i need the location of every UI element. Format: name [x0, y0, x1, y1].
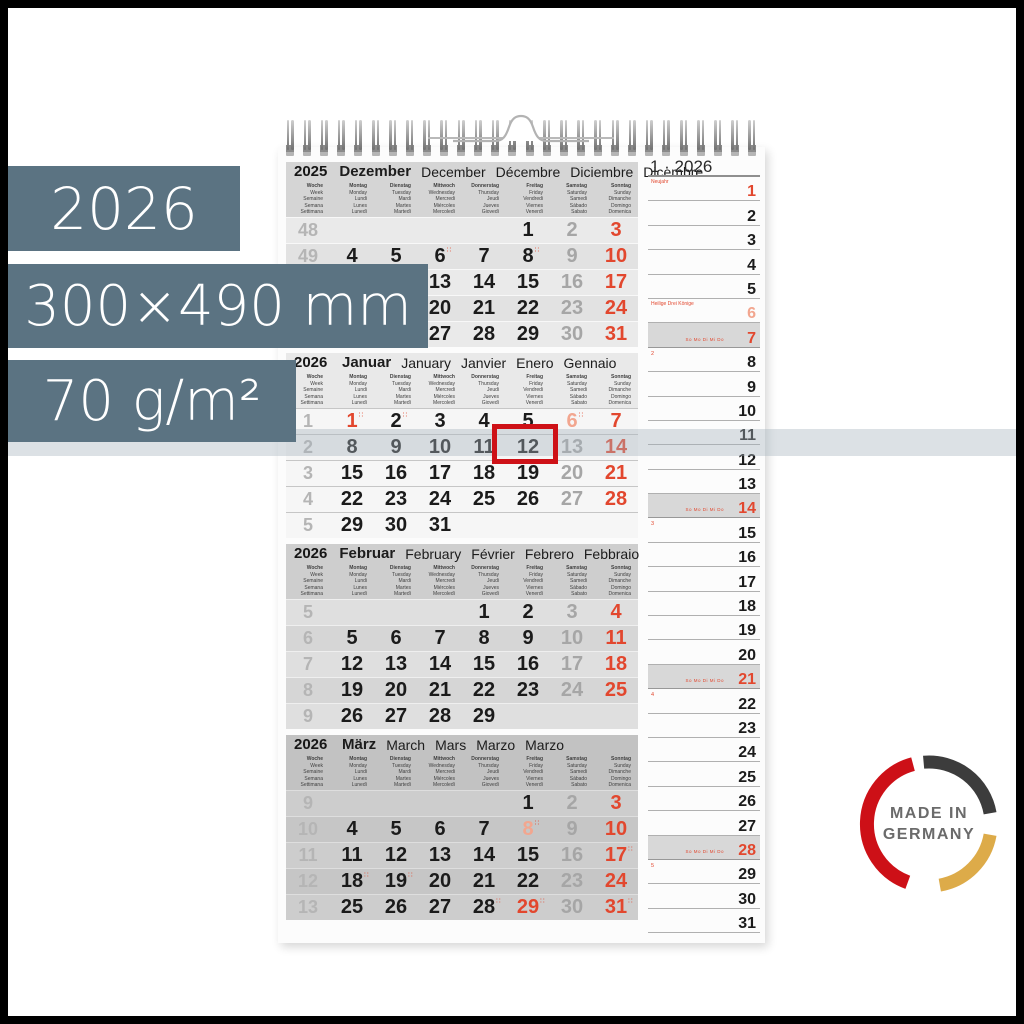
- day-name-cell: SonntagSundayDimancheDomingoDomenica: [594, 754, 638, 790]
- day-cell: 12: [330, 653, 374, 676]
- planner-row: 21So Mo Di Mi Do: [648, 665, 760, 689]
- day-cell: 31: [594, 896, 638, 919]
- day-name-line: Venerdì: [506, 591, 543, 598]
- day-name-cell: SamstagSaturdaySamediSábadoSabato: [550, 372, 594, 408]
- day-cell: 7: [462, 818, 506, 841]
- day-name-line: Mardi: [374, 196, 411, 203]
- day-name-line: Lundi: [330, 578, 367, 585]
- day-name-line: Sonntag: [594, 565, 631, 572]
- month-year: 2026: [286, 736, 330, 753]
- day-cell: 27: [550, 488, 594, 511]
- day-name-line: Mercredi: [418, 578, 455, 585]
- day-name-line: Semaine: [286, 578, 323, 585]
- day-name-line: Dienstag: [374, 183, 411, 190]
- day-name-line: Vendredi: [506, 769, 543, 776]
- day-name-line: Jeudi: [462, 387, 499, 394]
- day-name-line: Tuesday: [374, 763, 411, 770]
- wire-loop-icon: [662, 120, 670, 156]
- day-name-line: Jeudi: [462, 578, 499, 585]
- day-name-line: Mercoledì: [418, 400, 455, 407]
- wire-loop-icon: [680, 120, 688, 156]
- planner-day-number: 17: [738, 575, 756, 591]
- planner-day-number: 26: [738, 794, 756, 810]
- day-name-cell: DonnerstagThursdayJeudiJuevesGiovedì: [462, 754, 506, 790]
- planner-row: 3: [648, 226, 760, 250]
- day-name-line: Dimanche: [594, 196, 631, 203]
- sunday-mini-text: So Mo Di Mi Do: [685, 337, 724, 342]
- day-cell: 20: [418, 870, 462, 893]
- month-name: February: [405, 546, 461, 562]
- week-row: 5293031: [286, 512, 638, 538]
- planner-day-number: 20: [738, 648, 756, 664]
- planner-day-number: 6: [747, 306, 756, 322]
- planner-row: 28So Mo Di Mi Do: [648, 836, 760, 860]
- planner-rows: 1Neujahr23456Heilige Drei Könige7So Mo D…: [648, 177, 760, 933]
- day-cell: 2: [550, 792, 594, 815]
- day-name-line: Dimanche: [594, 769, 631, 776]
- day-name-line: Mercredi: [418, 196, 455, 203]
- day-cell: 13: [374, 653, 418, 676]
- day-name-line: Friday: [506, 190, 543, 197]
- planner-week-number: 2: [651, 351, 654, 357]
- day-cell: 25: [462, 488, 506, 511]
- planner-day-number: 27: [738, 819, 756, 835]
- day-cell: 19: [374, 870, 418, 893]
- day-name-line: Sonntag: [594, 183, 631, 190]
- day-name-line: Martedì: [374, 209, 411, 216]
- day-cell: 20: [374, 679, 418, 702]
- day-name-line: Domenica: [594, 591, 631, 598]
- week-number: 13: [286, 897, 330, 918]
- day-name-line: Jueves: [462, 203, 499, 210]
- day-name-cell: FreitagFridayVendrediViernesVenerdì: [506, 181, 550, 217]
- day-cell: 6: [374, 627, 418, 650]
- planner-day-number: 5: [747, 282, 756, 298]
- day-name-line: Miércoles: [418, 394, 455, 401]
- planner-day-number: 8: [747, 355, 756, 371]
- month-name: Mars: [435, 737, 466, 753]
- month-name: Marzo: [476, 737, 515, 753]
- day-name-line: Lunes: [330, 203, 367, 210]
- wire-loop-icon: [748, 120, 756, 156]
- day-name-cell: FreitagFridayVendrediViernesVenerdì: [506, 372, 550, 408]
- day-name-line: Thursday: [462, 381, 499, 388]
- spec-weight-overlay: 70 g/m²: [8, 360, 296, 442]
- day-name-line: Mercredi: [418, 769, 455, 776]
- planner-row: 18: [648, 592, 760, 616]
- day-cell: 3: [594, 219, 638, 242]
- day-name-line: Lundi: [330, 196, 367, 203]
- day-name-line: Thursday: [462, 763, 499, 770]
- planner-day-number: 29: [738, 867, 756, 883]
- day-name-line: Samedi: [550, 769, 587, 776]
- day-name-line: Montag: [330, 183, 367, 190]
- month-names: FebruarFebruaryFévrierFebreroFebbraio: [327, 545, 639, 562]
- day-name-line: Domingo: [594, 585, 631, 592]
- month-name: December: [421, 164, 486, 180]
- day-name-line: Thursday: [462, 572, 499, 579]
- day-name-line: Mercoledì: [418, 209, 455, 216]
- day-name-line: Martes: [374, 585, 411, 592]
- day-name-line: Sabato: [550, 209, 587, 216]
- week-number: 9: [286, 793, 330, 814]
- week-row: 1111121314151617: [286, 842, 638, 868]
- day-cell: 19: [506, 462, 550, 485]
- day-cell: 11: [594, 627, 638, 650]
- planner-day-number: 24: [738, 745, 756, 761]
- day-cell: 24: [594, 297, 638, 320]
- day-cell: 15: [330, 462, 374, 485]
- day-name-line: Sunday: [594, 763, 631, 770]
- wire-loop-icon: [320, 120, 328, 156]
- day-name-line: Viernes: [506, 394, 543, 401]
- month-year: 2025: [286, 163, 327, 180]
- planner-row: 1Neujahr: [648, 177, 760, 201]
- day-cell: 22: [330, 488, 374, 511]
- planner-day-number: 16: [738, 550, 756, 566]
- day-name-line: Domenica: [594, 400, 631, 407]
- wire-loop-icon: [731, 120, 739, 156]
- day-cell: 29: [462, 705, 506, 728]
- day-cell: 18: [330, 870, 374, 893]
- day-name-line: Jueves: [462, 776, 499, 783]
- day-name-cell: SonntagSundayDimancheDomingoDomenica: [594, 563, 638, 599]
- day-name-line: Freitag: [506, 374, 543, 381]
- day-name-line: Thursday: [462, 190, 499, 197]
- day-cell: 15: [506, 844, 550, 867]
- planner-row: 7So Mo Di Mi Do: [648, 323, 760, 347]
- week-number: 8: [286, 680, 330, 701]
- planner-row: 5: [648, 275, 760, 299]
- day-cell: 23: [374, 488, 418, 511]
- day-name-line: Wednesday: [418, 763, 455, 770]
- day-cell: 26: [506, 488, 550, 511]
- day-cell: 21: [594, 462, 638, 485]
- day-name-line: Giovedì: [462, 400, 499, 407]
- day-cell: 29: [330, 514, 374, 537]
- month-name: January: [401, 355, 451, 371]
- day-cell: 19: [330, 679, 374, 702]
- day-cell: 3: [594, 792, 638, 815]
- planner-day-number: 22: [738, 697, 756, 713]
- day-name-line: Sonntag: [594, 374, 631, 381]
- day-name-cell: SamstagSaturdaySamediSábadoSabato: [550, 181, 594, 217]
- day-name-line: Samstag: [550, 183, 587, 190]
- planner-row: 153: [648, 518, 760, 542]
- spec-size-label: 300×490 mm: [24, 274, 412, 339]
- made-in-germany-badge: MADE IN GERMANY: [849, 744, 1009, 904]
- planner-row: 9: [648, 372, 760, 396]
- day-name-cell: SonntagSundayDimancheDomingoDomenica: [594, 372, 638, 408]
- month-title: 2025DezemberDecemberDécembreDiciembreDic…: [286, 162, 638, 181]
- day-name-cell: FreitagFridayVendrediViernesVenerdì: [506, 754, 550, 790]
- week-number: 12: [286, 871, 330, 892]
- day-cell: 21: [462, 870, 506, 893]
- day-name-line: Mittwoch: [418, 183, 455, 190]
- day-name-line: Mittwoch: [418, 756, 455, 763]
- day-name-line: Freitag: [506, 183, 543, 190]
- day-name-cell: WocheWeekSemaineSemanaSettimana: [286, 181, 330, 217]
- week-row: 712131415161718: [286, 651, 638, 677]
- planner-row: 10: [648, 397, 760, 421]
- week-number: 48: [286, 220, 330, 241]
- spec-year-label: 2026: [50, 175, 198, 243]
- day-name-line: Domingo: [594, 394, 631, 401]
- badge-line1: MADE IN: [890, 804, 968, 823]
- day-cell: 9: [550, 818, 594, 841]
- day-name-line: Domingo: [594, 776, 631, 783]
- month-name: Gennaio: [564, 355, 617, 371]
- day-name-line: Friday: [506, 572, 543, 579]
- week-row: 9123: [286, 790, 638, 816]
- day-name-cell: DienstagTuesdayMardiMartesMartedì: [374, 181, 418, 217]
- day-name-line: Mittwoch: [418, 565, 455, 572]
- planner-row: 17: [648, 567, 760, 591]
- day-name-line: Wednesday: [418, 381, 455, 388]
- day-cell: 2: [506, 601, 550, 624]
- day-name-line: Semana: [286, 776, 323, 783]
- day-name-line: Giovedì: [462, 209, 499, 216]
- day-name-line: Tuesday: [374, 190, 411, 197]
- day-cell: 24: [550, 679, 594, 702]
- day-name-line: Settimana: [286, 209, 323, 216]
- wire-loop-icon: [372, 120, 380, 156]
- day-name-line: Giovedì: [462, 591, 499, 598]
- sunday-mini-text: So Mo Di Mi Do: [685, 507, 724, 512]
- day-name-line: Martes: [374, 776, 411, 783]
- spec-size-overlay: 300×490 mm: [8, 264, 428, 348]
- day-cell: 9: [506, 627, 550, 650]
- day-cell: 23: [506, 679, 550, 702]
- planner-row: 16: [648, 543, 760, 567]
- day-name-line: Freitag: [506, 756, 543, 763]
- month-block: 2026MärzMarchMarsMarzoMarzoWocheWeekSema…: [286, 735, 638, 920]
- day-name-line: Lunedì: [330, 782, 367, 789]
- wire-loop-icon: [337, 120, 345, 156]
- month-name: Enero: [516, 355, 553, 371]
- day-name-line: Lundi: [330, 387, 367, 394]
- day-cell: 7: [418, 627, 462, 650]
- day-name-line: Mardi: [374, 769, 411, 776]
- day-name-line: Friday: [506, 381, 543, 388]
- day-cell: 24: [418, 488, 462, 511]
- sunday-mini-text: So Mo Di Mi Do: [685, 678, 724, 683]
- day-name-line: Saturday: [550, 190, 587, 197]
- day-cell: 10: [594, 818, 638, 841]
- day-name-line: Miércoles: [418, 776, 455, 783]
- planner-row: 30: [648, 884, 760, 908]
- day-name-line: Settimana: [286, 782, 323, 789]
- wire-loop-icon: [303, 120, 311, 156]
- wire-loop-icon: [714, 120, 722, 156]
- day-name-line: Week: [286, 572, 323, 579]
- planner-day-number: 23: [738, 721, 756, 737]
- day-name-line: Vendredi: [506, 387, 543, 394]
- day-cell: 25: [330, 896, 374, 919]
- day-name-line: Sábado: [550, 585, 587, 592]
- day-name-header: WocheWeekSemaineSemanaSettimanaMontagMon…: [286, 181, 638, 217]
- day-cell: 16: [374, 462, 418, 485]
- day-cell: 3: [550, 601, 594, 624]
- day-name-cell: MontagMondayLundiLunesLunedì: [330, 563, 374, 599]
- day-cell: 6: [418, 818, 462, 841]
- day-cell: 20: [550, 462, 594, 485]
- month-title: 2026FebruarFebruaryFévrierFebreroFebbrai…: [286, 544, 638, 563]
- day-name-line: Giovedì: [462, 782, 499, 789]
- day-cell: 2: [550, 219, 594, 242]
- planner-header: 1 · 2026: [648, 155, 760, 177]
- day-name-cell: SonntagSundayDimancheDomingoDomenica: [594, 181, 638, 217]
- day-name-line: Sabato: [550, 782, 587, 789]
- day-name-line: Domenica: [594, 209, 631, 216]
- day-name-line: Jeudi: [462, 769, 499, 776]
- day-cell: 12: [374, 844, 418, 867]
- day-cell: 1: [462, 601, 506, 624]
- holiday-note: Heilige Drei Könige: [651, 301, 694, 307]
- product-image: 2025DezemberDecemberDécembreDiciembreDic…: [0, 0, 1024, 1024]
- day-name-cell: MittwochWednesdayMercrediMiércolesMercol…: [418, 372, 462, 408]
- day-cell: 8: [462, 627, 506, 650]
- day-name-cell: MontagMondayLundiLunesLunedì: [330, 372, 374, 408]
- day-name-line: Donnerstag: [462, 756, 499, 763]
- day-name-line: Miércoles: [418, 585, 455, 592]
- day-name-line: Lundi: [330, 769, 367, 776]
- month-block: 2026FebruarFebruaryFévrierFebreroFebbrai…: [286, 544, 638, 729]
- day-name-line: Friday: [506, 763, 543, 770]
- month-name: March: [386, 737, 425, 753]
- month-name: Febrero: [525, 546, 574, 562]
- planner-row: 25: [648, 762, 760, 786]
- month-name: März: [342, 736, 376, 753]
- week-row: 1325262728293031: [286, 894, 638, 920]
- day-name-line: Dienstag: [374, 565, 411, 572]
- day-cell: 18: [462, 462, 506, 485]
- planner-day-number: 10: [738, 404, 756, 420]
- day-cell: 10: [550, 627, 594, 650]
- planner-row: 295: [648, 860, 760, 884]
- day-name-line: Viernes: [506, 776, 543, 783]
- day-name-cell: FreitagFridayVendrediViernesVenerdì: [506, 563, 550, 599]
- week-row: 819202122232425: [286, 677, 638, 703]
- day-name-line: Viernes: [506, 203, 543, 210]
- day-name-cell: MittwochWednesdayMercrediMiércolesMercol…: [418, 181, 462, 217]
- week-number: 3: [286, 463, 330, 484]
- day-name-line: Mercredi: [418, 387, 455, 394]
- day-name-line: Viernes: [506, 585, 543, 592]
- planner-row: 82: [648, 348, 760, 372]
- planner-week-number: 5: [651, 863, 654, 869]
- day-cell: 22: [506, 870, 550, 893]
- day-name-line: Mardi: [374, 578, 411, 585]
- day-cell: 17: [594, 271, 638, 294]
- day-cell: 17: [550, 653, 594, 676]
- day-cell: 10: [594, 245, 638, 268]
- planner-day-number: 31: [738, 916, 756, 932]
- day-cell: 28: [462, 323, 506, 346]
- day-name-line: Martes: [374, 394, 411, 401]
- day-name-cell: MittwochWednesdayMercrediMiércolesMercol…: [418, 563, 462, 599]
- month-names: JanuarJanuaryJanvierEneroGennaio: [330, 354, 616, 371]
- sunday-mini-text: So Mo Di Mi Do: [685, 849, 724, 854]
- day-name-line: Samstag: [550, 756, 587, 763]
- planner-day-number: 25: [738, 770, 756, 786]
- day-name-cell: DonnerstagThursdayJeudiJuevesGiovedì: [462, 181, 506, 217]
- day-name-line: Venerdì: [506, 400, 543, 407]
- badge-line2: GERMANY: [883, 825, 975, 844]
- day-name-line: Domenica: [594, 782, 631, 789]
- day-cell: 4: [594, 601, 638, 624]
- day-name-cell: DonnerstagThursdayJeudiJuevesGiovedì: [462, 372, 506, 408]
- day-cell: 21: [418, 679, 462, 702]
- day-name-line: Semana: [286, 203, 323, 210]
- month-title: 2026JanuarJanuaryJanvierEneroGennaio: [286, 353, 638, 372]
- day-name-line: Freitag: [506, 565, 543, 572]
- day-name-line: Sunday: [594, 572, 631, 579]
- day-name-line: Woche: [286, 756, 323, 763]
- planner-day-number: 30: [738, 892, 756, 908]
- week-row: 1218192021222324: [286, 868, 638, 894]
- day-name-line: Martedì: [374, 782, 411, 789]
- hanger-hook-icon: [451, 114, 591, 153]
- week-number: 9: [286, 706, 330, 727]
- day-cell: 23: [550, 297, 594, 320]
- day-name-line: Vendredi: [506, 578, 543, 585]
- week-number: 5: [286, 515, 330, 536]
- spec-year-overlay: 2026: [8, 166, 240, 251]
- day-name-line: Samedi: [550, 387, 587, 394]
- day-name-line: Dimanche: [594, 387, 631, 394]
- day-name-line: Samstag: [550, 565, 587, 572]
- day-cell: 15: [506, 271, 550, 294]
- month-title: 2026MärzMarchMarsMarzoMarzo: [286, 735, 638, 754]
- day-cell: 28: [594, 488, 638, 511]
- planner-day-number: 7: [747, 331, 756, 347]
- planner-row: 26: [648, 787, 760, 811]
- day-name-line: Martes: [374, 203, 411, 210]
- day-cell: 16: [506, 653, 550, 676]
- day-name-cell: SamstagSaturdaySamediSábadoSabato: [550, 754, 594, 790]
- week-number: 7: [286, 654, 330, 675]
- day-name-line: Sonntag: [594, 756, 631, 763]
- day-name-line: Monday: [330, 190, 367, 197]
- day-name-line: Donnerstag: [462, 565, 499, 572]
- day-name-line: Wednesday: [418, 190, 455, 197]
- day-name-line: Montag: [330, 374, 367, 381]
- day-name-header: WocheWeekSemaineSemanaSettimanaMontagMon…: [286, 754, 638, 790]
- planner-week-number: 4: [651, 692, 654, 698]
- planner-day-number: 28: [738, 843, 756, 859]
- month-names: DezemberDecemberDécembreDiciembreDicembr…: [327, 163, 703, 180]
- planner-day-number: 3: [747, 233, 756, 249]
- day-name-line: Montag: [330, 756, 367, 763]
- day-name-line: Martedì: [374, 400, 411, 407]
- day-name-cell: MontagMondayLundiLunesLunedì: [330, 754, 374, 790]
- day-cell: 17: [594, 844, 638, 867]
- wire-loop-icon: [406, 120, 414, 156]
- day-cell: 5: [330, 627, 374, 650]
- month-year: 2026: [286, 545, 327, 562]
- month-names: MärzMarchMarsMarzoMarzo: [330, 736, 564, 753]
- day-name-line: Tuesday: [374, 572, 411, 579]
- day-name-line: Sabato: [550, 400, 587, 407]
- month-name: Janvier: [461, 355, 506, 371]
- day-cell: 16: [550, 844, 594, 867]
- month-name: Marzo: [525, 737, 564, 753]
- day-name-cell: DonnerstagThursdayJeudiJuevesGiovedì: [462, 563, 506, 599]
- planner-row: 31: [648, 909, 760, 933]
- day-cell: 8: [506, 818, 550, 841]
- week-row: 6567891011: [286, 625, 638, 651]
